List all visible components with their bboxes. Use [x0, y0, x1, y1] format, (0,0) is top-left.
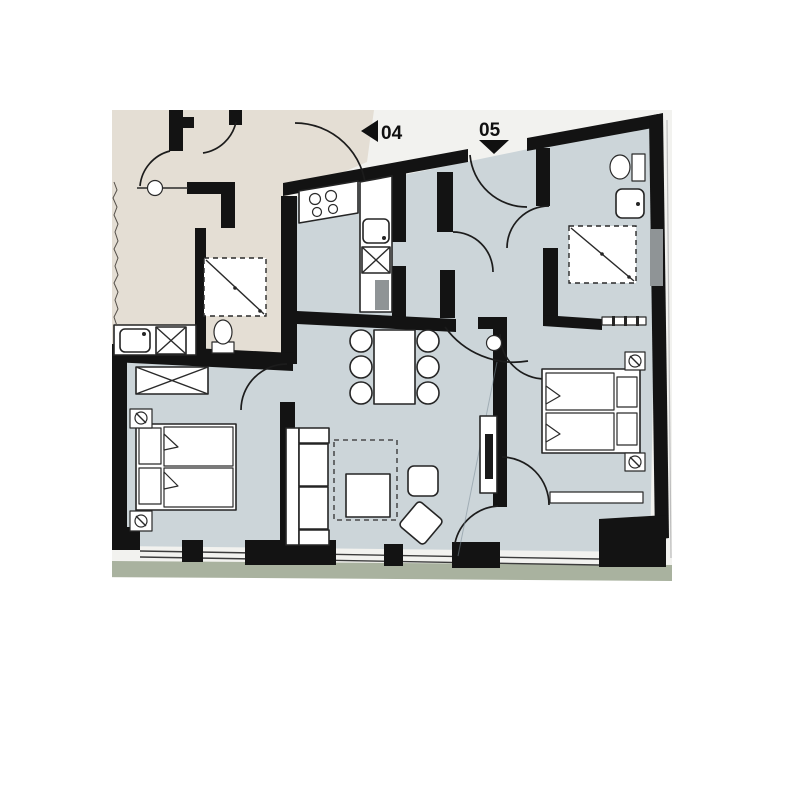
- dishwasher-icon: [362, 247, 390, 273]
- dining-table: [374, 330, 415, 404]
- wall-04-stub1: [169, 110, 183, 151]
- sink-icon: [120, 329, 150, 352]
- door-knob-circle: [487, 336, 502, 351]
- wall-kitchen-right-a: [392, 170, 406, 242]
- bedside-lamp-icon: [130, 409, 152, 428]
- shower-icon: [204, 258, 266, 316]
- pier-4: [384, 544, 403, 566]
- toilet-icon: [212, 320, 234, 353]
- right-wall-window: [650, 229, 663, 286]
- side-table: [408, 466, 438, 496]
- pier-corner: [599, 515, 666, 567]
- washing-machine-icon: [156, 327, 186, 354]
- pier-5: [452, 542, 500, 568]
- unit04-door-pivot: [148, 181, 163, 196]
- mattress: [546, 373, 614, 410]
- double-bed-left: [136, 424, 236, 510]
- dining-chair: [350, 382, 372, 404]
- dining-chair: [350, 356, 372, 378]
- tv-unit: [480, 416, 497, 493]
- bedside-lamp-icon: [625, 453, 645, 471]
- bedside-lamp-icon: [625, 352, 645, 370]
- dining-chair: [350, 330, 372, 352]
- sofa: [286, 428, 329, 545]
- kitchen-cabinet-gray: [375, 280, 389, 310]
- tv-screen: [485, 434, 493, 479]
- wall-closet-b: [440, 270, 455, 318]
- kitchen-faucet-dot: [382, 236, 386, 240]
- wall-kitchen-left: [281, 196, 297, 364]
- laundry-counter: [114, 325, 196, 355]
- radiator-icon: [602, 316, 646, 326]
- pillow: [617, 413, 637, 445]
- mattress: [164, 468, 233, 507]
- dining-chair: [417, 356, 439, 378]
- wall-04-stub1b: [183, 117, 194, 128]
- wall-bath-left: [543, 248, 558, 324]
- wall-partition-stub: [478, 317, 494, 329]
- sideboard: [550, 492, 643, 503]
- bath-sink-icon: [616, 189, 644, 218]
- pillow: [139, 428, 161, 464]
- wall-04-h: [187, 182, 225, 194]
- coffee-table: [346, 474, 390, 517]
- dining-area: [350, 330, 439, 404]
- bedside-lamp-icon: [130, 511, 152, 531]
- shower-icon: [569, 226, 636, 283]
- wall-closet-a: [437, 172, 453, 232]
- wall-bath-stub: [536, 148, 550, 206]
- double-bed-right: [542, 369, 640, 453]
- floor-plan-svg: 04 05: [0, 0, 800, 800]
- pier-2: [182, 540, 203, 562]
- dining-chair: [417, 330, 439, 352]
- wall-left: [112, 352, 127, 544]
- unit04-label: 04: [381, 123, 403, 144]
- wall-04-v: [221, 182, 235, 228]
- floor-plan-page: 04 05: [0, 0, 800, 800]
- wall-kitchen-right-b: [392, 266, 406, 318]
- dining-chair: [417, 382, 439, 404]
- pillow: [617, 377, 637, 407]
- wardrobe-icon: [136, 367, 208, 394]
- unit05-label: 05: [479, 120, 501, 141]
- pillow: [139, 468, 161, 504]
